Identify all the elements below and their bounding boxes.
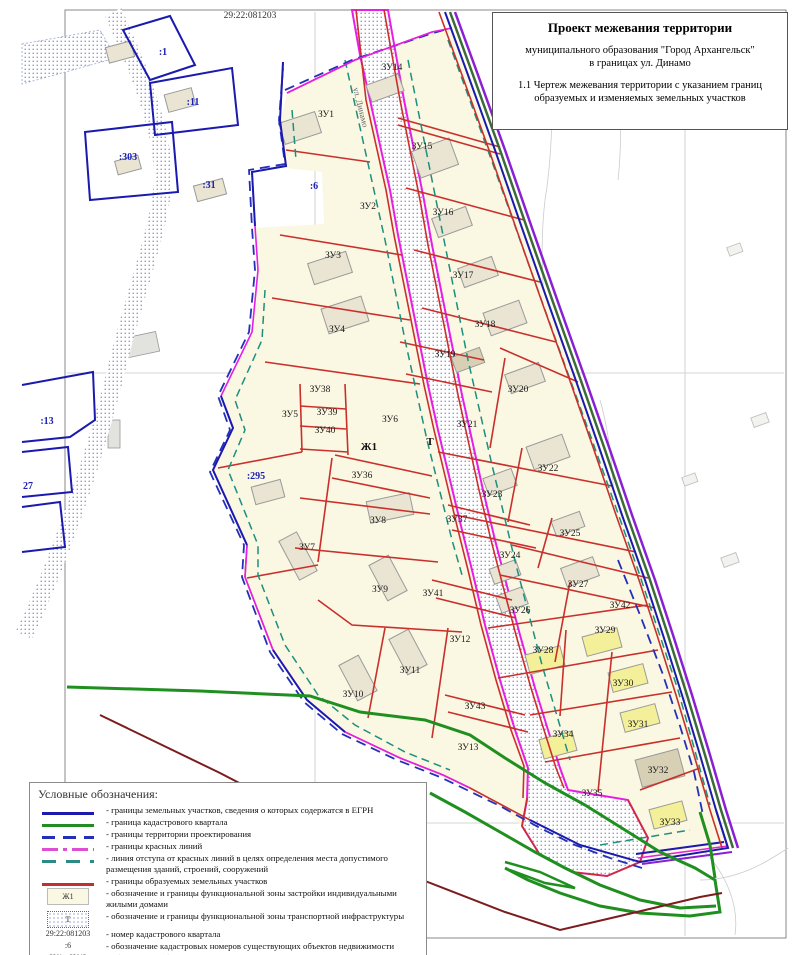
legend-item: - границы красных линий — [38, 841, 418, 852]
legend-swatch-line-project — [38, 829, 98, 840]
plot-label-ЗУ11: ЗУ11 — [400, 666, 421, 676]
plot-label-ЗУ40: ЗУ40 — [315, 426, 336, 436]
legend-item-label: - обозначение и границы функциональной з… — [106, 888, 418, 910]
legend-item-label: - границы красных линий — [106, 841, 202, 852]
plot-label-ЗУ6: ЗУ6 — [382, 415, 398, 425]
plot-label-ЗУ32: ЗУ32 — [648, 766, 669, 776]
plot-label-ЗУ8: ЗУ8 — [370, 516, 386, 526]
legend: Условные обозначения: - границы земельны… — [29, 782, 427, 955]
plot-label-ЗУ12: ЗУ12 — [450, 635, 471, 645]
plot-label-ЗУ3: ЗУ3 — [325, 251, 341, 261]
quarter-number-label: 29:22:081203 — [224, 11, 277, 21]
cadastral-label-:303: :303 — [119, 152, 137, 163]
legend-item-label: - граница кадастрового квартала — [106, 817, 228, 828]
plot-label-ЗУ21: ЗУ21 — [457, 420, 478, 430]
plot-label-ЗУ9: ЗУ9 — [372, 585, 388, 595]
plot-label-ЗУ13: ЗУ13 — [458, 743, 479, 753]
plot-label-ЗУ30: ЗУ30 — [613, 679, 634, 689]
plot-label-ЗУ27: ЗУ27 — [568, 580, 589, 590]
plot-label-ЗУ35: ЗУ35 — [582, 789, 603, 799]
title-block: Проект межевания территории муниципально… — [492, 12, 788, 130]
legend-item-label: - обозначение кадастровых номеров сущест… — [106, 941, 394, 952]
legend-title: Условные обозначения: — [38, 787, 418, 802]
plot-label-ЗУ22: ЗУ22 — [538, 464, 559, 474]
legend-item: Т- обозначение и границы функциональной … — [38, 911, 418, 928]
plot-label-ЗУ20: ЗУ20 — [508, 385, 529, 395]
legend-item: :6- обозначение кадастровых номеров суще… — [38, 941, 418, 952]
legend-swatch-line-redline — [38, 841, 98, 852]
plot-label-ЗУ34: ЗУ34 — [553, 730, 574, 740]
legend-item-label: - границы образуемых земельных участков — [106, 876, 267, 887]
cadastral-label-:1: :1 — [159, 47, 167, 58]
plot-label-ЗУ26: ЗУ26 — [510, 606, 531, 616]
plot-label-ЗУ43: ЗУ43 — [465, 702, 486, 712]
legend-item: - границы территории проектирования — [38, 829, 418, 840]
plot-label-ЗУ38: ЗУ38 — [310, 385, 331, 395]
legend-swatch-line-egrn — [38, 805, 98, 816]
plot-label-ЗУ41: ЗУ41 — [423, 589, 444, 599]
cadastral-label-:31: :31 — [202, 180, 215, 191]
plot-label-ЗУ29: ЗУ29 — [595, 626, 616, 636]
plot-label-ЗУ33: ЗУ33 — [660, 818, 681, 828]
plot-label-ЗУ23: ЗУ23 — [482, 490, 503, 500]
plot-label-ЗУ1: ЗУ1 — [318, 110, 334, 120]
legend-item-label: - обозначение и границы функциональной з… — [106, 911, 404, 922]
plot-label-ЗУ37: ЗУ37 — [447, 515, 468, 525]
cadastral-label-27: 27 — [23, 481, 33, 492]
legend-swatch-box-zh1: Ж1 — [38, 888, 98, 905]
cadastral-label-:13: :13 — [40, 416, 53, 427]
title-line3: в границах ул. Динамо — [503, 57, 777, 70]
cadastral-label-:295: :295 — [247, 471, 265, 482]
plot-label-ЗУ24: ЗУ24 — [500, 551, 521, 561]
plot-label-ЗУ10: ЗУ10 — [343, 690, 364, 700]
plot-label-ЗУ2: ЗУ2 — [360, 202, 376, 212]
legend-item: - линия отступа от красных линий в целях… — [38, 853, 418, 875]
legend-swatch-line-formed — [38, 876, 98, 887]
plot-label-ЗУ36: ЗУ36 — [352, 471, 373, 481]
legend-swatch-sw-text: 29:22:081203 — [38, 929, 98, 940]
plot-label-ЗУ28: ЗУ28 — [533, 646, 554, 656]
title-line2: муниципального образования "Город Арханг… — [503, 44, 777, 57]
legend-item-label: - линия отступа от красных линий в целях… — [106, 853, 418, 875]
plot-label-ЗУ5: ЗУ5 — [282, 410, 298, 420]
legend-item-label: - номер кадастрового квартала — [106, 929, 220, 940]
cadastral-map-page: 29:22:081203 ул. Динамо ЗУ1ЗУ2ЗУ3ЗУ4ЗУ5З… — [0, 0, 800, 955]
legend-swatch-sw-text: :6 — [38, 941, 98, 952]
title-line4: 1.1 Чертеж межевания территории с указан… — [503, 79, 777, 105]
plot-label-ЗУ15: ЗУ15 — [412, 142, 433, 152]
legend-item: 29:22:081203- номер кадастрового квартал… — [38, 929, 418, 940]
legend-item-label: - границы земельных участков, сведения о… — [106, 805, 373, 816]
legend-swatch-line-setback — [38, 853, 98, 864]
plot-label-ЗУ42: ЗУ42 — [610, 601, 631, 611]
plot-label-ЗУ25: ЗУ25 — [560, 529, 581, 539]
title-line1: Проект межевания территории — [503, 20, 777, 36]
cadastral-label-:6: :6 — [310, 181, 318, 192]
legend-item: - граница кадастрового квартала — [38, 817, 418, 828]
legend-swatch-box-t: Т — [38, 911, 98, 928]
legend-item: - границы земельных участков, сведения о… — [38, 805, 418, 816]
plot-label-ЗУ18: ЗУ18 — [475, 320, 496, 330]
zone-label-Т: Т — [426, 436, 434, 448]
legend-item-label: - границы территории проектирования — [106, 829, 251, 840]
plot-label-ЗУ7: ЗУ7 — [299, 543, 315, 553]
plot-label-ЗУ39: ЗУ39 — [317, 408, 338, 418]
zone-label-Ж1: Ж1 — [361, 441, 377, 453]
cadastral-label-:11: :11 — [187, 97, 200, 108]
legend-swatch-line-quarter — [38, 817, 98, 828]
legend-item: Ж1- обозначение и границы функциональной… — [38, 888, 418, 910]
plot-label-ЗУ4: ЗУ4 — [329, 325, 345, 335]
plot-label-ЗУ16: ЗУ16 — [433, 208, 454, 218]
plot-label-ЗУ14: ЗУ14 — [382, 63, 403, 73]
plot-label-ЗУ17: ЗУ17 — [453, 271, 474, 281]
plot-label-ЗУ31: ЗУ31 — [628, 720, 649, 730]
legend-item: - границы образуемых земельных участков — [38, 876, 418, 887]
plot-label-ЗУ19: ЗУ19 — [435, 350, 456, 360]
